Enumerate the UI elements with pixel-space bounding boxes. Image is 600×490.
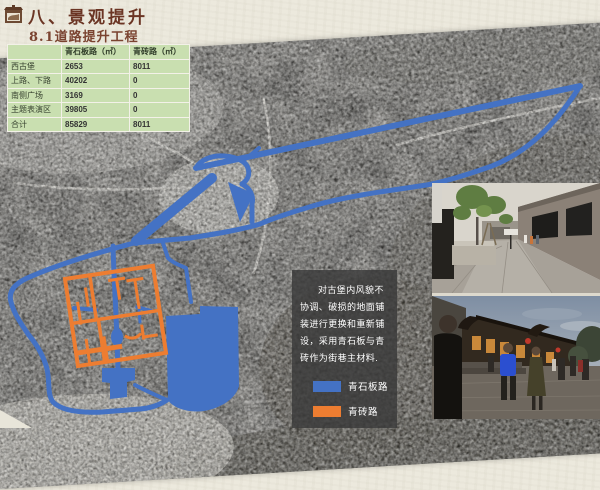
legend-item-stone-road: 青石板路 [300,379,390,393]
header-empty [8,45,62,60]
row-label: 主题表演区 [8,103,62,118]
stone-road-fills [102,182,254,411]
brick-value: 8011 [130,59,190,74]
table-row: 上路、下路 40202 0 [8,74,190,89]
table-row: 主题表演区 39805 0 [8,103,190,118]
row-label: 西古堡 [8,59,62,74]
table-total-row: 合计 85829 8011 [8,117,190,132]
page-subtitle: 8.1道路提升工程 [29,26,139,45]
gate-emblem-icon [3,4,24,25]
photo-street-day [432,183,600,293]
page-title: 八、景观提升 [28,3,148,28]
table-header-row: 青石板路（㎡） 青砖路（㎡） [8,45,190,60]
row-label: 合计 [8,117,62,132]
stone-value: 85829 [62,117,130,132]
photo-column [432,183,600,419]
stone-value: 2653 [62,59,130,74]
brick-value: 0 [130,88,190,103]
note-text: 对古堡内风貌不协调、破损的地面铺装进行更换和重新铺设，采用青石板与青砖作为街巷主… [300,282,390,367]
slide: { "slide": { "title": "八、景观提升", "subtitl… [0,0,600,428]
table-row: 南侧广场 3169 0 [8,88,190,103]
row-label: 上路、下路 [8,74,62,89]
legend-label: 青砖路 [348,404,378,418]
stone-value: 39805 [62,103,130,118]
table-row: 西古堡 2653 8011 [8,59,190,74]
legend-label: 青石板路 [348,379,388,393]
map-legend: 青石板路 青砖路 [300,379,390,418]
brick-value: 0 [130,74,190,89]
stone-road-swatch [313,381,341,392]
brick-road-swatch [313,406,341,417]
header-stone-road: 青石板路（㎡） [62,45,130,60]
row-label: 南侧广场 [8,88,62,103]
note-box: 对古堡内风貌不协调、破损的地面铺装进行更换和重新铺设，采用青石板与青砖作为街巷主… [292,270,397,428]
stone-value: 3169 [62,88,130,103]
photo-street-dusk [432,296,600,419]
brick-value: 0 [130,103,190,118]
stone-value: 40202 [62,74,130,89]
area-table: 青石板路（㎡） 青砖路（㎡） 西古堡 2653 8011 上路、下路 40202… [7,44,190,132]
header-brick-road: 青砖路（㎡） [130,45,190,60]
legend-item-brick-road: 青砖路 [300,404,390,418]
brick-value: 8011 [130,117,190,132]
map-corner-wedge [0,408,32,428]
